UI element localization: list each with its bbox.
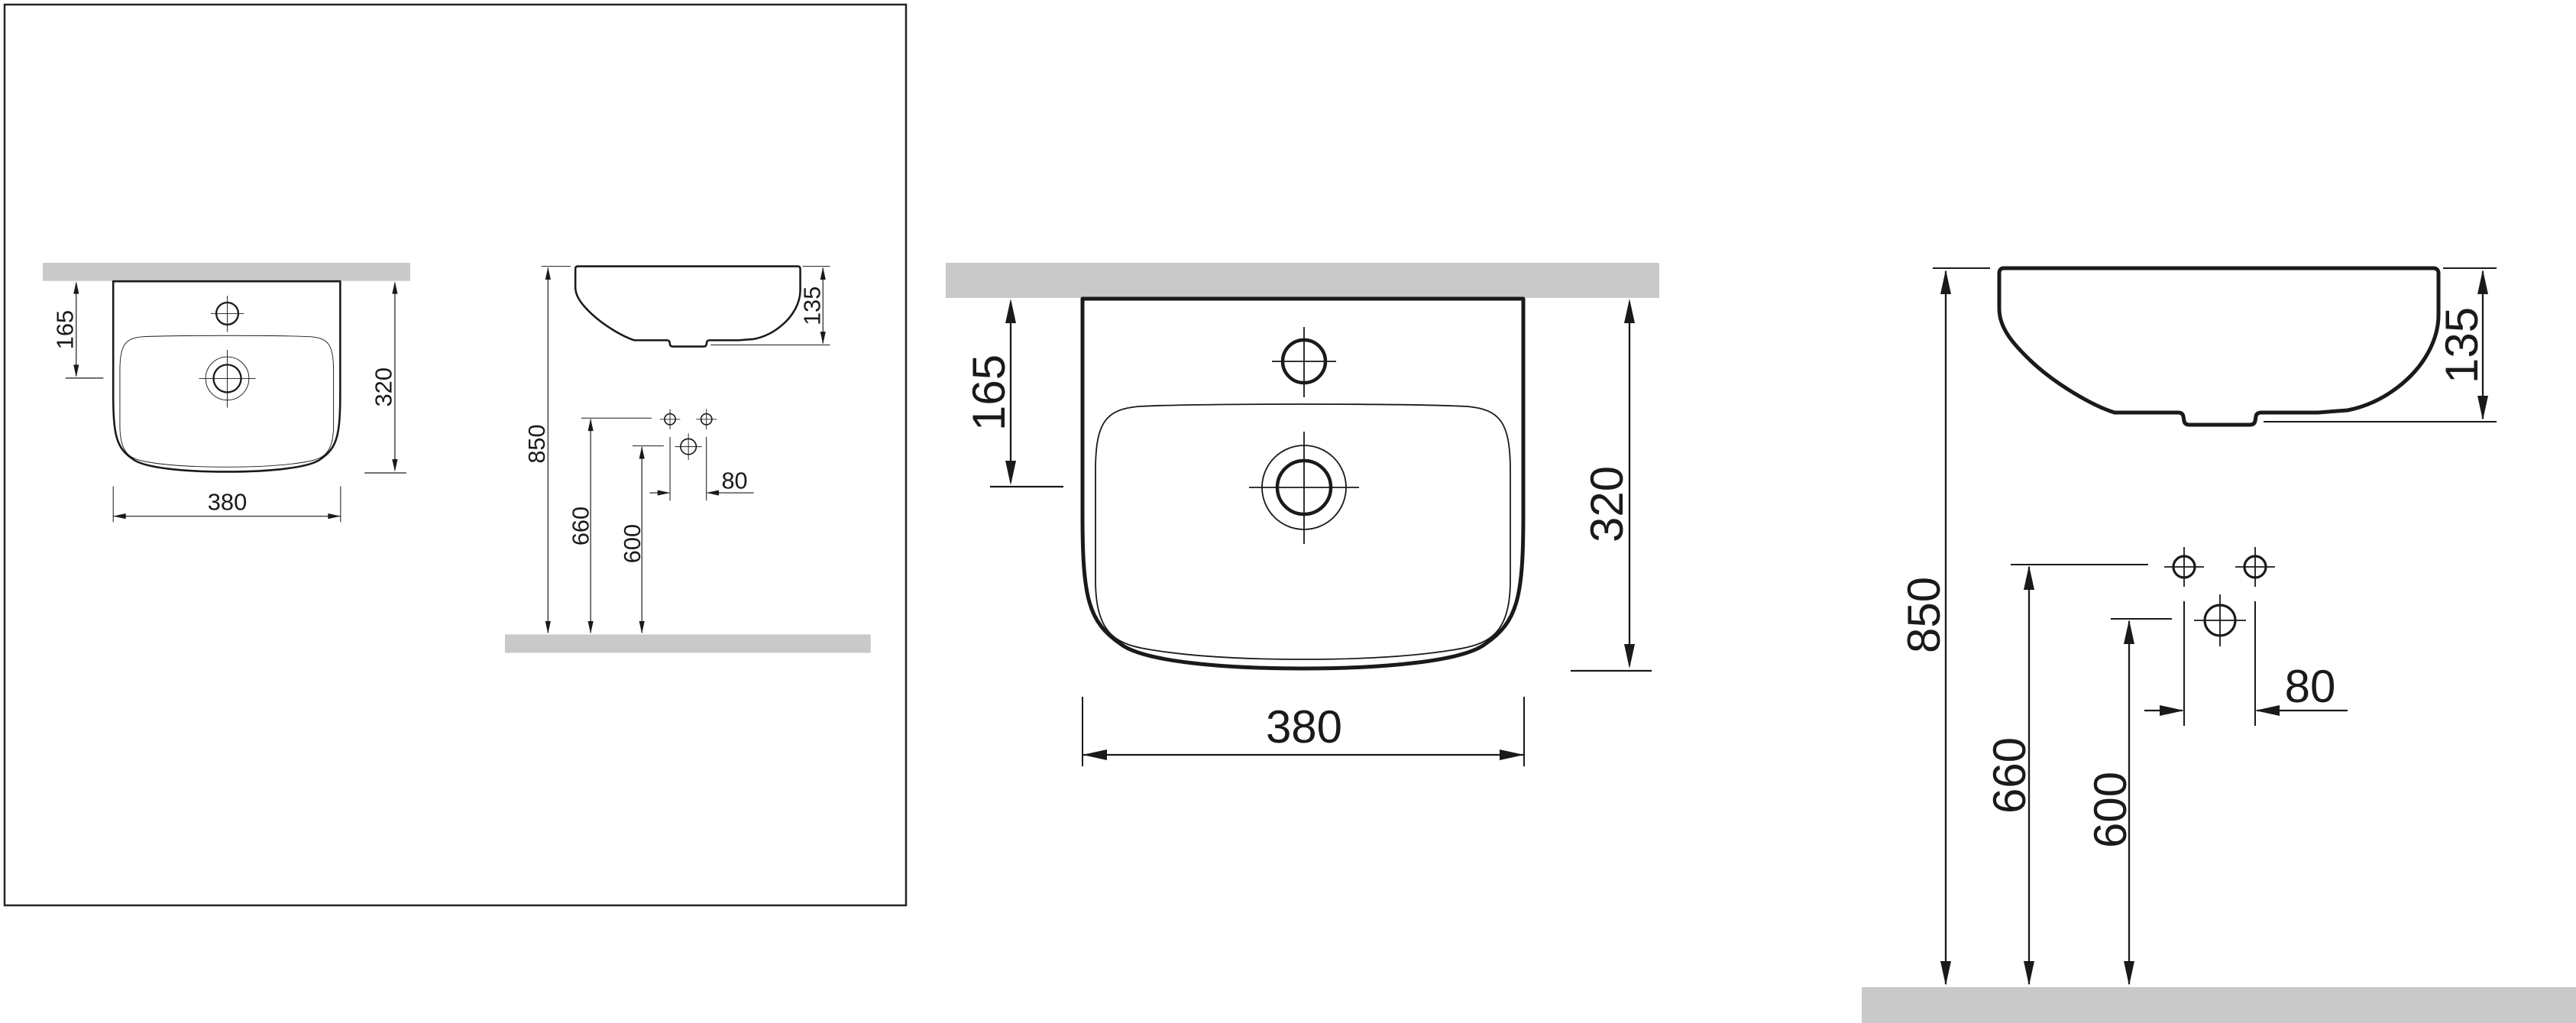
drawing-sheet: 165 320 380 [0,0,2576,1023]
front-view-large [946,263,1659,766]
side-view-small [505,267,871,653]
front-view-small [43,263,410,522]
technical-drawing: 165 320 380 [0,0,2576,1023]
side-view-large [1862,268,2576,1023]
overview-panel-border [5,5,906,905]
